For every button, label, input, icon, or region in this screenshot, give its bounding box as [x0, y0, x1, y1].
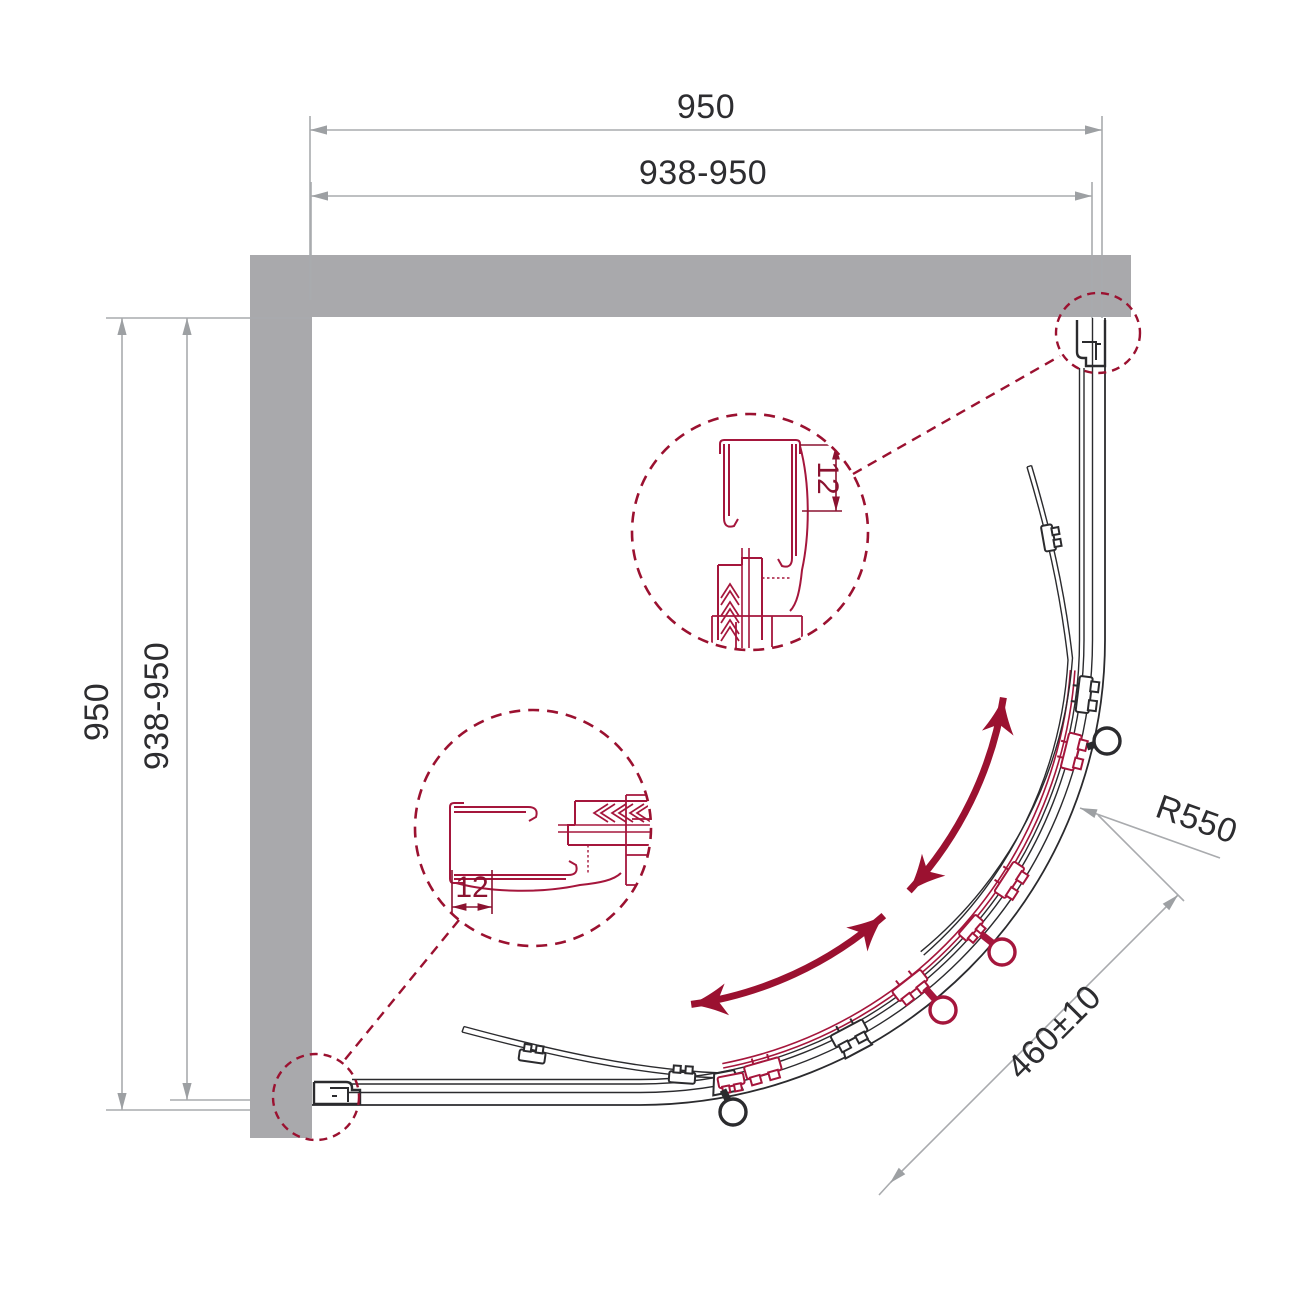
technical-drawing-page: 950 938-950 950 938-950 — [0, 0, 1300, 1300]
door-motion-arrows — [689, 695, 1019, 1020]
callout-link-bottom — [343, 920, 459, 1062]
detail-side-dim-label: 12 — [455, 871, 488, 904]
handle-knob-red-lower — [930, 997, 956, 1023]
detail-circle-top: 12 — [632, 414, 868, 652]
detail-circle-side: 12 — [415, 710, 662, 946]
frame-tracks — [312, 318, 1105, 1105]
dim-label-top-outer: 950 — [677, 88, 735, 126]
handle-knob-black-bottom — [720, 1099, 746, 1125]
dimension-left-range: 938-950 — [138, 318, 250, 1100]
handle-knob-red-upper — [989, 939, 1015, 965]
shower-enclosure-diagram: 950 938-950 950 938-950 — [0, 0, 1300, 1300]
wall-profile-top-right — [1077, 320, 1105, 366]
dim-label-entry-width: 460±10 — [1000, 978, 1109, 1087]
dim-label-left-range: 938-950 — [138, 642, 176, 770]
wall-left — [250, 255, 312, 1138]
dimension-radius: R550 — [1078, 788, 1242, 858]
sliding-door-inner-bottom — [462, 1027, 722, 1079]
dim-label-radius: R550 — [1151, 788, 1242, 852]
wall-top — [250, 255, 1131, 317]
dim-label-left-outer: 950 — [78, 683, 116, 741]
dim-label-top-range: 938-950 — [639, 154, 767, 192]
callout-link-top — [853, 356, 1060, 474]
detail-top-dim-label: 12 — [811, 461, 844, 494]
handle-knob-black-top — [1094, 728, 1120, 754]
